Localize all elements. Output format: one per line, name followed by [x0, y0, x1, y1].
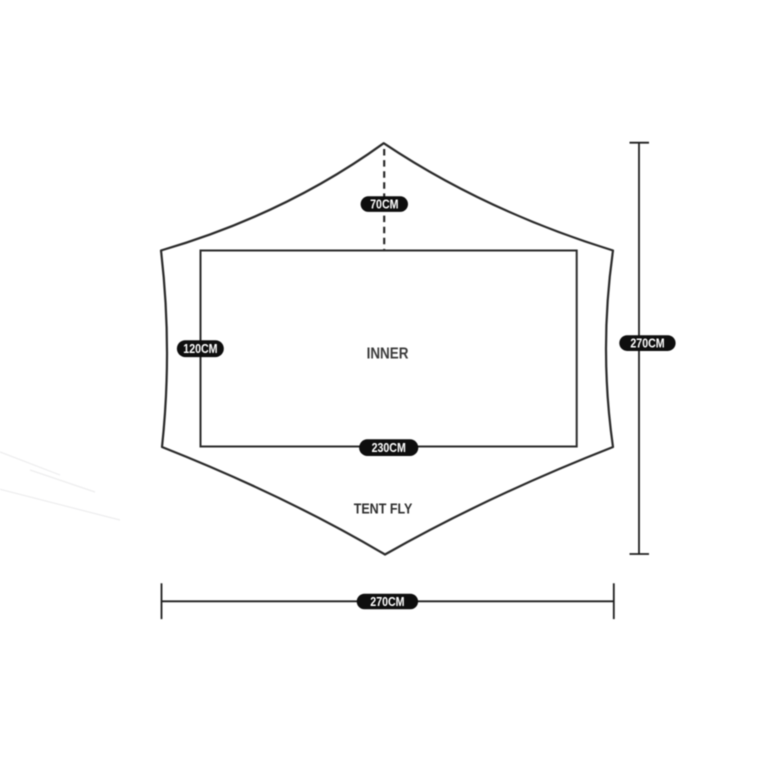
- svg-text:TENT FLY: TENT FLY: [354, 499, 413, 516]
- svg-text:230CM: 230CM: [372, 441, 406, 455]
- svg-text:INNER: INNER: [367, 346, 409, 363]
- svg-text:120CM: 120CM: [183, 342, 217, 356]
- svg-text:270CM: 270CM: [370, 595, 404, 609]
- svg-text:270CM: 270CM: [630, 337, 664, 351]
- svg-text:70CM: 70CM: [370, 198, 398, 212]
